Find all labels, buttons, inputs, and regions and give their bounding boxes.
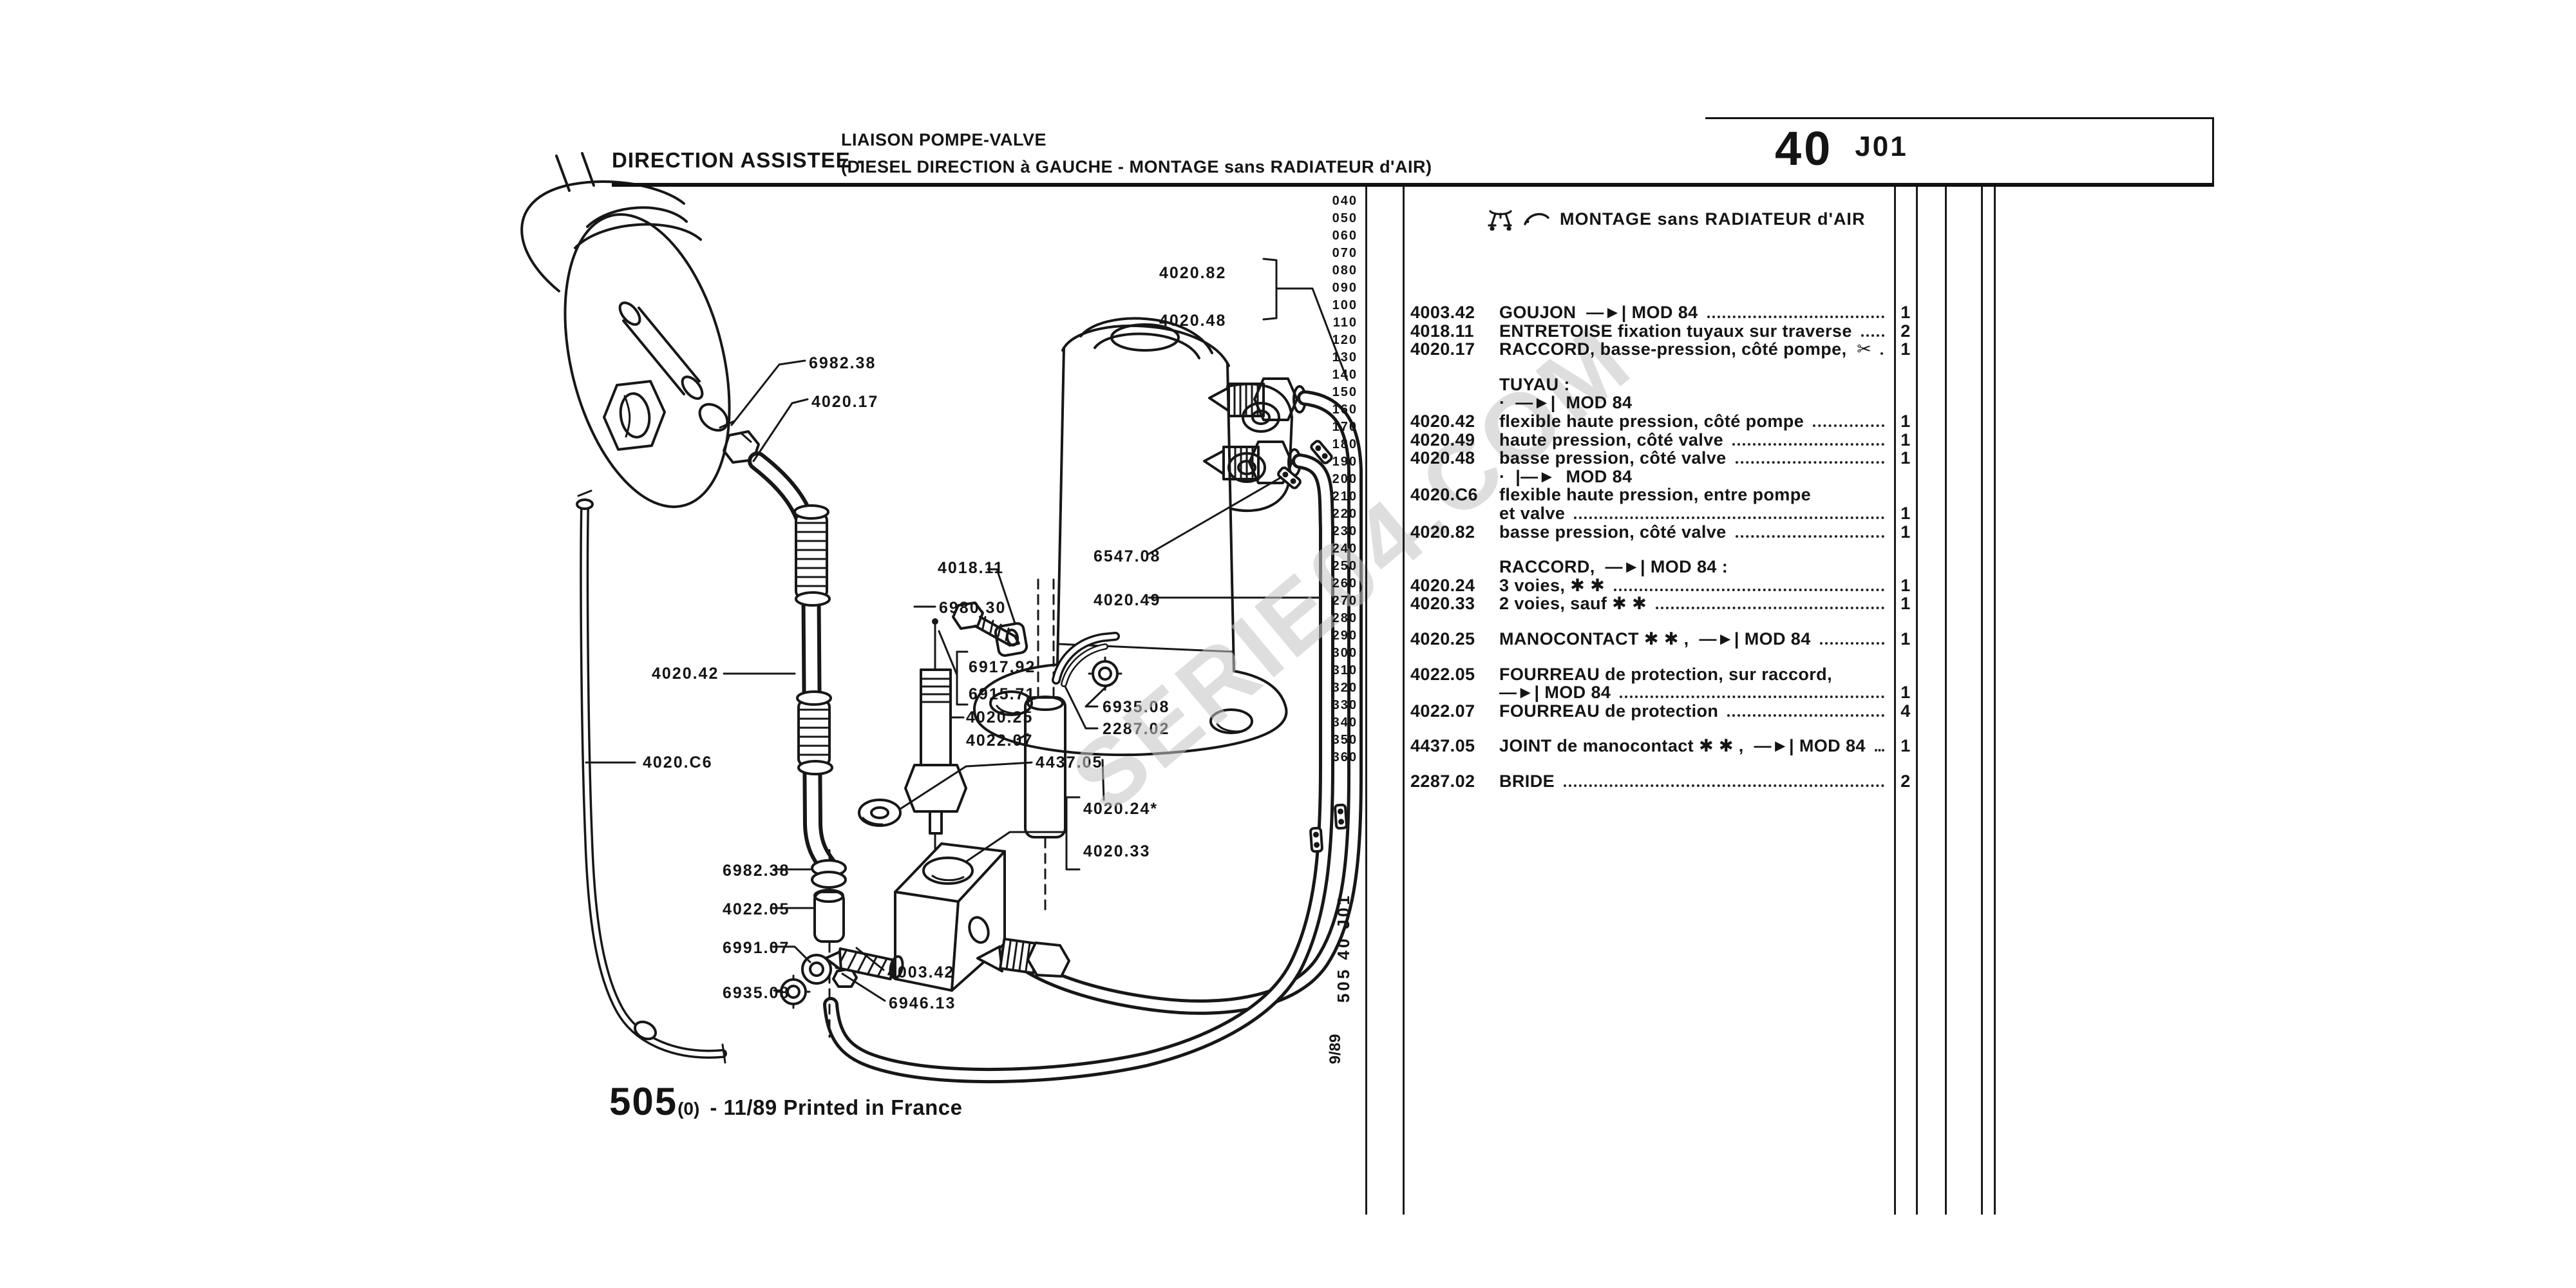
page-code-value: J01: [1855, 131, 1908, 162]
dotted-leader: [1656, 607, 1884, 609]
arc-icon: [1522, 210, 1551, 228]
part-ref: 4020.49: [1410, 430, 1499, 450]
part-label-4020-17: 4020.17: [811, 393, 878, 411]
part-desc: · |—► MOD 84: [1499, 467, 1632, 487]
dotted-leader: [1736, 461, 1884, 464]
index-number: 330: [1324, 697, 1358, 714]
part-label-4020-42: 4020.42: [652, 665, 719, 683]
index-number: 200: [1324, 471, 1358, 488]
part-desc: 2 voies, sauf ✱ ✱: [1499, 594, 1647, 614]
table-rule-vertical: [1981, 187, 1983, 1215]
part-label-4020-25: 4020.25: [966, 708, 1033, 726]
dotted-leader: [1820, 642, 1884, 645]
part-qty: 1: [1891, 430, 1920, 450]
part-ref: 4018.11: [1410, 321, 1499, 341]
index-number: 240: [1324, 540, 1358, 558]
parts-row: 4020.42 flexible haute pression, côté po…: [1410, 412, 1920, 430]
parts-row: 4020.25 MANOCONTACT ✱ ✱ , —►| MOD 84 1: [1410, 629, 1920, 648]
index-number: 220: [1324, 506, 1358, 523]
parts-row: 4020.24 3 voies, ✱ ✱ 1: [1410, 576, 1920, 594]
index-number: 150: [1324, 384, 1358, 401]
part-label-4020-c6: 4020.C6: [643, 753, 713, 772]
header-rule: [612, 183, 2214, 187]
part-ref: 4022.05: [1410, 665, 1499, 685]
montage-note-text: MONTAGE sans RADIATEUR d'AIR: [1560, 209, 1865, 229]
part-desc: haute pression, côté valve: [1499, 430, 1723, 450]
pump-hose-4020-42: [757, 461, 832, 868]
part-label-6915-71: 6915.71: [969, 685, 1036, 703]
dotted-leader: [1727, 714, 1884, 717]
index-number: 290: [1324, 627, 1358, 645]
page-subtitle-line1: LIAISON POMPE-VALVE: [841, 130, 1046, 150]
part-label-6982-38-top: 6982.38: [809, 354, 876, 372]
index-number: 310: [1324, 662, 1358, 679]
part-ref: 4020.17: [1410, 339, 1499, 359]
part-desc: MANOCONTACT ✱ ✱ , —►| MOD 84: [1499, 629, 1811, 649]
part-label-4020-82: 4020.82: [1159, 264, 1226, 282]
index-number: 360: [1324, 749, 1358, 766]
montage-note: MONTAGE sans RADIATEUR d'AIR: [1488, 207, 1865, 231]
catalog-page: 6982.38 4020.17 4020.82 4020.48 4018.11 …: [0, 0, 2576, 1288]
index-number: 260: [1324, 575, 1358, 592]
part-label-6946-13: 6946.13: [889, 994, 956, 1012]
doc-suffix: (0): [677, 1099, 699, 1119]
part-label-4018-11: 4018.11: [938, 559, 1004, 577]
part-qty: 2: [1891, 321, 1920, 341]
parts-row: 4020.48 basse pression, côté valve 1: [1410, 448, 1920, 467]
table-rule-vertical: [1365, 187, 1367, 1215]
dotted-leader: [1614, 589, 1884, 591]
part-ref: 4020.24: [1410, 576, 1499, 596]
index-number: 180: [1324, 436, 1358, 453]
page-number-value: 40: [1775, 122, 1833, 175]
left-tube-4020-c6: [577, 491, 725, 1063]
part-qty: 1: [1891, 629, 1920, 649]
dotted-leader: [1732, 443, 1884, 446]
index-number: 160: [1324, 401, 1358, 419]
part-qty: 2: [1891, 772, 1920, 791]
index-number: 080: [1324, 262, 1358, 279]
part-ref: 4020.33: [1410, 594, 1499, 614]
part-ref: 4003.42: [1410, 303, 1499, 323]
part-label-6982-38-bottom: 6982.38: [723, 862, 790, 880]
index-number: 130: [1324, 349, 1358, 366]
parts-row: 4437.05 JOINT de manocontact ✱ ✱ , —►| M…: [1410, 736, 1920, 755]
index-number: 300: [1324, 645, 1358, 662]
part-label-4022-05: 4022.05: [723, 900, 790, 918]
part-ref: 4020.25: [1410, 629, 1499, 649]
part-qty: 1: [1891, 683, 1920, 703]
parts-row: RACCORD, —►| MOD 84 :: [1410, 557, 1920, 576]
part-ref: 4022.07: [1410, 701, 1499, 721]
table-rule-vertical: [1945, 187, 1947, 1215]
part-desc: · —►| MOD 84: [1499, 393, 1632, 413]
parts-row: 4018.11 ENTRETOISE fixation tuyaux sur t…: [1410, 321, 1920, 340]
part-qty: 1: [1891, 303, 1920, 323]
dotted-leader: [1620, 696, 1884, 698]
part-desc: BRIDE: [1499, 772, 1555, 791]
parts-row: 4020.C6 flexible haute pression, entre p…: [1410, 485, 1920, 504]
dotted-leader: [1880, 352, 1884, 355]
index-number: 340: [1324, 714, 1358, 732]
part-desc: TUYAU :: [1499, 375, 1570, 395]
page-number-rule: [1705, 117, 2214, 119]
parts-row: et valve 1: [1410, 504, 1920, 522]
side-date-stamp: 9/89: [1327, 1020, 1343, 1078]
dotted-leader: [1875, 749, 1884, 752]
part-qty: 1: [1891, 736, 1920, 756]
part-desc: basse pression, côté valve: [1499, 522, 1727, 542]
side-reference-code: 505 40 J01: [1334, 884, 1352, 1012]
parts-row: 2287.02 BRIDE 2: [1410, 772, 1920, 790]
part-label-4003-42: 4003.42: [887, 963, 954, 981]
parts-row: 4020.82 basse pression, côté valve 1: [1410, 522, 1920, 541]
part-qty: 4: [1891, 701, 1920, 721]
parts-row: 4020.49 haute pression, côté valve 1: [1410, 430, 1920, 449]
index-number: 280: [1324, 610, 1358, 627]
page-number-rule-end: [2212, 117, 2214, 185]
index-number: 190: [1324, 453, 1358, 471]
part-ref: 4020.48: [1410, 448, 1499, 468]
part-ref: 4020.82: [1410, 522, 1499, 542]
page-footer: 505(0)- 11/89 Printed in France: [609, 1079, 963, 1124]
index-number: 230: [1324, 523, 1358, 540]
parts-row: TUYAU :: [1410, 375, 1920, 393]
index-number: 320: [1324, 679, 1358, 697]
parts-row: 4020.33 2 voies, sauf ✱ ✱ 1: [1410, 594, 1920, 612]
index-number: 090: [1324, 279, 1358, 297]
part-qty: 1: [1891, 576, 1920, 596]
page-subtitle-line2: (DIESEL DIRECTION à GAUCHE - MONTAGE san…: [841, 157, 1432, 177]
page-number: 40J01: [1775, 121, 1908, 176]
part-ref: 4020.42: [1410, 412, 1499, 431]
part-desc: et valve: [1499, 504, 1565, 524]
dotted-leader: [1707, 316, 1884, 318]
part-label-6980-30: 6980.30: [939, 599, 1006, 617]
section-title: DIRECTION ASSISTEE -: [612, 148, 865, 173]
dotted-leader: [1813, 424, 1884, 427]
part-desc: RACCORD, —►| MOD 84 :: [1499, 557, 1728, 577]
part-ref: 4020.C6: [1410, 485, 1499, 505]
part-desc: flexible haute pression, entre pompe: [1499, 485, 1811, 505]
index-number: 110: [1324, 314, 1358, 332]
parts-row: 4022.07 FOURREAU de protection 4: [1410, 701, 1920, 720]
parts-row: · —►| MOD 84: [1410, 393, 1920, 412]
parts-row: —►| MOD 84 1: [1410, 683, 1920, 701]
part-qty: 1: [1891, 522, 1920, 542]
hoist-icon: [1488, 207, 1513, 231]
part-label-4022-07: 4022.07: [966, 732, 1033, 750]
index-column: 0400500600700800901001101201301401501601…: [1324, 193, 1358, 766]
index-number: 100: [1324, 297, 1358, 314]
part-qty: 1: [1891, 339, 1920, 359]
dotted-leader: [1564, 784, 1884, 787]
parts-list: 4003.42 GOUJON —►| MOD 84 1 4018.11 ENTR…: [1410, 303, 1920, 790]
index-number: 050: [1324, 210, 1358, 227]
print-info: - 11/89 Printed in France: [710, 1095, 962, 1119]
index-number: 120: [1324, 332, 1358, 349]
dotted-leader: [1574, 516, 1884, 519]
part-desc: flexible haute pression, côté pompe: [1499, 412, 1804, 431]
part-desc: ENTRETOISE fixation tuyaux sur traverse: [1499, 321, 1852, 341]
index-number: 140: [1324, 366, 1358, 384]
parts-row: · |—► MOD 84: [1410, 467, 1920, 486]
part-label-6935-08-bottom: 6935.08: [723, 984, 790, 1002]
part-desc: RACCORD, basse-pression, côté pompe, ✂: [1499, 339, 1871, 359]
part-label-6547-08: 6547.08: [1094, 547, 1160, 565]
parts-row: 4003.42 GOUJON —►| MOD 84 1: [1410, 303, 1920, 321]
part-desc: 3 voies, ✱ ✱: [1499, 576, 1605, 596]
parts-row: 4022.05 FOURREAU de protection, sur racc…: [1410, 665, 1920, 683]
parts-row: 4020.17 RACCORD, basse-pression, côté po…: [1410, 339, 1920, 358]
index-number: 210: [1324, 488, 1358, 506]
part-desc: GOUJON —►| MOD 84: [1499, 303, 1698, 323]
index-number: 170: [1324, 419, 1358, 436]
doc-number: 505: [609, 1080, 677, 1123]
part-desc: —►| MOD 84: [1499, 683, 1611, 703]
part-ref: 2287.02: [1410, 772, 1499, 791]
pump-assembly: [522, 153, 759, 524]
part-label-6991-07: 6991.07: [723, 939, 790, 957]
dotted-leader: [1736, 535, 1884, 538]
dotted-leader: [1861, 334, 1884, 337]
part-desc: basse pression, côté valve: [1499, 448, 1727, 468]
table-rule-vertical: [1994, 187, 1996, 1215]
part-desc: FOURREAU de protection: [1499, 701, 1718, 721]
part-ref: 4437.05: [1410, 736, 1499, 756]
part-label-6917-92: 6917.92: [969, 658, 1036, 676]
index-number: 270: [1324, 592, 1358, 610]
part-qty: 1: [1891, 412, 1920, 431]
part-label-4020-49: 4020.49: [1094, 591, 1160, 609]
part-desc: FOURREAU de protection, sur raccord,: [1499, 665, 1832, 685]
index-number: 070: [1324, 245, 1358, 262]
index-number: 040: [1324, 193, 1358, 210]
part-qty: 1: [1891, 504, 1920, 524]
part-label-4020-48: 4020.48: [1159, 312, 1226, 330]
part-qty: 1: [1891, 594, 1920, 614]
index-number: 350: [1324, 732, 1358, 749]
table-rule-vertical: [1403, 187, 1405, 1215]
index-number: 250: [1324, 558, 1358, 575]
exploded-diagram: 6982.38 4020.17 4020.82 4020.48 4018.11 …: [0, 0, 2576, 1288]
index-number: 060: [1324, 227, 1358, 245]
part-qty: 1: [1891, 448, 1920, 468]
part-desc: JOINT de manocontact ✱ ✱ , —►| MOD 84: [1499, 736, 1866, 756]
part-label-4020-33: 4020.33: [1083, 842, 1150, 860]
